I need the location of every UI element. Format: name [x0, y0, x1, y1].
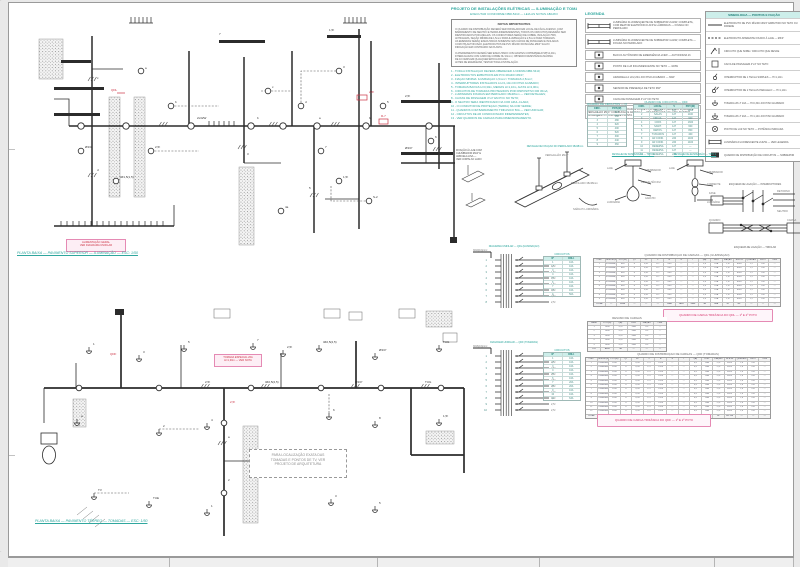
plan-label: c: [272, 85, 274, 89]
riser-side-table-2: CIRCUITOSNºDISJ.116A216A316A416A516A616A…: [543, 349, 581, 401]
outlet-low-icon: [706, 99, 724, 107]
title-strip-cell: [170, 558, 378, 567]
detail-2-drawing: VERGALHÃO Ø1/4" PERFILADO 38x38mm SAÍDA …: [509, 148, 601, 220]
plan-label: b: [175, 100, 177, 104]
riser-side-table-1: CIRCUITOSNºDISJ.110A210A310A410A510A610A…: [543, 253, 581, 297]
detail-1-text: FIXAÇÃO À LAJE COM CHUMBADOR Ø1/4" E ARR…: [456, 149, 508, 218]
margin-tick: [9, 149, 15, 150]
plan-label: Ø3/4": [405, 146, 413, 150]
plan-label: 6: [435, 135, 437, 139]
plan-label: 5: [387, 100, 389, 104]
plan-label: TV: [98, 488, 102, 492]
legend-right-row: INTERRUPTOR DE 1 TECLA SIMPLES — H=1,10m: [706, 70, 800, 83]
box-icon: [706, 60, 724, 68]
svg-text:1: 1: [486, 258, 488, 262]
legend-desc: BLOCO AUTÔNOMO DE EMERGÊNCIA 2x9W — AUTO…: [612, 53, 700, 58]
plan-label: 2,5²: [287, 345, 292, 349]
plan-label: 2x32W: [197, 116, 207, 120]
conduit-icon: [706, 21, 724, 29]
legend-row: ARANDELA A H=2,20m DO PISO ACABADO — 60W: [585, 72, 701, 82]
detail-3-drawing: LAJE CHUMBADOR VERGALHÃO Ø1/4" GANCHO LU…: [605, 156, 661, 222]
svg-text:GANCHO: GANCHO: [645, 197, 656, 200]
table-grid: FASEPOT(W)I(A)DISJFIAÇÃOOBS1148011,650A1…: [587, 321, 667, 353]
switch2-icon: [706, 86, 724, 94]
plan-label: 2: [163, 424, 165, 428]
table-grid: NºDISJ.116A216A316A416A516A616A720A820A9…: [543, 352, 581, 401]
notes-header-1: PROJETO DE INSTALAÇÕES ELÉTRICAS — ILUMI…: [451, 6, 577, 11]
svg-text:4: 4: [486, 276, 488, 280]
svg-text:2: 2: [486, 360, 488, 364]
rise-icon: [706, 47, 724, 55]
outlet-high-icon: [706, 112, 724, 120]
notes-column: PROJETO DE INSTALAÇÕES ELÉTRICAS — ILUMI…: [451, 6, 577, 121]
plan-label: Ø3/4": [85, 145, 93, 149]
svg-text:PERFILADO 38x38mm: PERFILADO 38x38mm: [571, 181, 598, 185]
floor-plan-upper: abcd3571,5²2,5²Ø3/4"3#1,5(1,5)S-24a62x32…: [13, 9, 457, 301]
notes-list: 1 - TODA A INSTALAÇÃO DEVERÁ OBEDECER À …: [451, 70, 577, 121]
legend-right-row: INTERRUPTOR DE 2 TECLAS PARALELO — H=1,1…: [706, 83, 800, 96]
plan-label: 3#2,5(2,5): [323, 340, 337, 344]
plan-label: d: [305, 100, 307, 104]
plan-label: 3#1,5(1,5): [120, 175, 134, 179]
floor-plan-ground: 13572,5²3#2,5(2,5)Ø3/4"TUGa24681,5²TVTUE…: [15, 303, 465, 547]
svg-text:8: 8: [486, 396, 488, 400]
plan-label: a: [145, 66, 147, 70]
load-summary-table: RESUMO DE CARGASFASEPOT(W)I(A)DISJFIAÇÃO…: [587, 317, 667, 352]
plan-label: 4: [211, 418, 213, 422]
legend-desc: SENSOR DE PRESENÇA DE TETO 360°: [612, 86, 700, 91]
legend-right-row: TOMADA 2P+T 10A — H=0,30m DO PISO ACABAD…: [706, 96, 800, 109]
table-title: QUADRO DE CIRCUITOS — QDL: [587, 103, 627, 106]
plan-label-red: 2,5²: [230, 400, 235, 404]
svg-text:VERGALHÃO Ø1/4": VERGALHÃO Ø1/4": [545, 152, 568, 157]
legend-mid-title: LEGENDA: [585, 11, 701, 16]
svg-text:LUMINÁRIA: LUMINÁRIA: [707, 201, 720, 204]
plan-label: 5: [188, 340, 190, 344]
plan-label: 8: [379, 416, 381, 420]
svg-text:3: 3: [486, 270, 488, 274]
notes-box-heading: NOTAS IMPORTANTES: [455, 22, 573, 26]
svg-text:2,5²: 2,5²: [551, 402, 556, 406]
svg-text:LAJE: LAJE: [669, 167, 675, 170]
legend-desc: ELETRODUTO DE PVC RÍGIDO Ø3/4" EMBUTIDO …: [724, 21, 800, 29]
title-strip-cell: [378, 558, 540, 567]
svg-text:3#10(10)mm²: 3#10(10)mm²: [473, 249, 488, 252]
plan-label: 1: [93, 342, 95, 346]
table-grid: NºDISJ.110A210A310A410A510A610A716A816AG…: [543, 256, 581, 297]
plan-label: 2,5²: [405, 94, 410, 98]
load-table-qdf-label: QUADRO DE CARGA TRIFÁSICA DO QDF — 1º E …: [597, 414, 711, 427]
svg-text:5: 5: [486, 378, 488, 382]
svg-text:6: 6: [486, 288, 488, 292]
svg-text:5: 5: [486, 282, 488, 286]
legend-right-row: CAIXA DE PASSAGEM 4"x4" NO TETO: [706, 57, 800, 70]
svg-text:6: 6: [486, 384, 488, 388]
legend-right-row: TOMADA 2P+T 20A — H=1,10m DO PISO ACABAD…: [706, 109, 800, 122]
svg-text:SAÍDA P/ LUMINÁRIA: SAÍDA P/ LUMINÁRIA: [573, 207, 599, 211]
schematic-2-label: ESQUEMA DE LIGAÇÃO — TRIFILAR: [707, 246, 800, 249]
table-grid: CIRC.LOCALVPOT.(W)1SALAS12712002SALAS127…: [633, 104, 699, 157]
load-table-qdl-label: QUADRO DE CARGA TRIFÁSICA DO QDL — 1º E …: [663, 309, 773, 322]
plan-label: 7: [257, 338, 259, 342]
legend-right-row: ELETRODUTO DE PVC RÍGIDO Ø3/4" EMBUTIDO …: [706, 18, 800, 31]
notes-header-2: EXECUTAR CONFORME NBR-5410 — LEIA AS NOT…: [451, 12, 577, 16]
legend-right-row: ELETRODUTO APARENTE FIXADO À LAJE — Ø3/4…: [706, 31, 800, 44]
plan-label: 1: [211, 504, 213, 508]
legend-desc: QUADRO DE DISTRIBUIÇÃO DE CIRCUITOS — SO…: [724, 153, 800, 158]
legend-desc: TOMADA 2P+T 10A — H=0,30m DO PISO ACABAD…: [724, 101, 800, 106]
plan-label: Ø3/4": [355, 380, 363, 384]
plan-label: TUE: [153, 496, 159, 500]
plan-label: 2,5²: [155, 145, 160, 149]
plan-label: 5: [379, 501, 381, 505]
plan-label: b: [257, 116, 259, 120]
svg-text:8: 8: [486, 300, 488, 304]
legend-desc: INTERRUPTOR DE 1 TECLA SIMPLES — H=1,10m: [724, 75, 800, 80]
svg-text:1: 1: [486, 354, 488, 358]
svg-text:3: 3: [486, 366, 488, 370]
legend-desc: PONTO DE LUZ NO TETO — POTÊNCIA INDICADA: [724, 127, 800, 132]
plan-bottom-callout: TOMADA ESPECIAL 20AH=1,30m — VER NOTA: [214, 354, 262, 367]
legend-desc: INTERRUPTOR DE 2 TECLAS PARALELO — H=1,1…: [724, 88, 800, 93]
legend-desc: CIRCUITO QUE SOBE / CIRCUITO QUE DESCE: [724, 49, 800, 54]
page: abcd3571,5²2,5²Ø3/4"3#1,5(1,5)S-24a62x32…: [0, 0, 800, 567]
table-grid: CIRC.POT.(W)1640256034804620540065207300…: [587, 106, 627, 147]
legend-right-row: CIRCUITO QUE SOBE / CIRCUITO QUE DESCE: [706, 44, 800, 57]
light-icon: [706, 125, 724, 133]
svg-text:CHUMBADOR: CHUMBADOR: [645, 169, 661, 172]
svg-text:10: 10: [484, 408, 487, 412]
plan-label: a: [228, 435, 230, 439]
detail-1-sketch: [456, 161, 506, 213]
plan-label: 3: [247, 152, 249, 156]
plan-bottom-title: PLANTA BAIXA — PAVIMENTO TÉRREO — TOMADA…: [35, 519, 148, 523]
plan-label: 3: [335, 494, 337, 498]
svg-text:2: 2: [486, 264, 488, 268]
plan-label: 3: [143, 350, 145, 354]
svg-text:9: 9: [486, 402, 488, 406]
plan-label: 6: [333, 408, 335, 412]
plan-label: 1,5²: [329, 28, 334, 32]
legend-right-row: LUMINÁRIA FLUORESCENTE 2x32W — VER LEGEN…: [706, 135, 800, 148]
svg-text:LUMINÁRIA: LUMINÁRIA: [607, 201, 620, 204]
title-strip: [8, 557, 794, 567]
svg-text:NEUTRO: NEUTRO: [777, 209, 788, 213]
plan-label: 7: [325, 145, 327, 149]
legend-desc: ELETRODUTO APARENTE FIXADO À LAJE — Ø3/4…: [724, 36, 800, 41]
qdl-panel-symbol: [450, 237, 457, 243]
detail-3-suspension: DETALHE DE SUSPENSÃO — TIPO 1 LAJE CHUMB…: [605, 153, 661, 227]
svg-text:LAJE: LAJE: [607, 167, 613, 170]
conduit-dash-icon: [706, 34, 724, 42]
svg-text:VERGALHÃO Ø1/4": VERGALHÃO Ø1/4": [641, 181, 661, 184]
fold-mark: [0, 551, 16, 567]
plan-label: S-2: [373, 195, 378, 199]
title-strip-cell: [540, 558, 715, 567]
plan-label: a: [319, 116, 321, 120]
note-line: ANTES DE ENERGIZAR, TESTAR TODA A INSTAL…: [455, 61, 573, 64]
plan-label: TUG: [443, 340, 450, 344]
legend-row: SENSOR DE PRESENÇA DE TETO 360°: [585, 83, 701, 93]
plan-label: d: [97, 168, 99, 172]
plan-label: 7: [219, 32, 221, 36]
note-line: INDICAÇÃO EM CONTRÁRIO NA PLANTA.: [455, 46, 573, 49]
legend-right: SIMBOLOGIA — PONTOS E FIAÇÃO ELETRODUTO …: [705, 11, 800, 162]
plan-label: 2,5²: [205, 380, 210, 384]
svg-text:RETORNO: RETORNO: [777, 189, 790, 193]
svg-text:7: 7: [486, 294, 488, 298]
qdf-panel-symbol: [115, 309, 124, 315]
plan-label: 3#2,5(2,5): [265, 380, 279, 384]
plan-top-title: PLANTA BAIXA — PAVIMENTO SUPERIOR — ILUM…: [17, 251, 138, 255]
drawing-sheet: abcd3571,5²2,5²Ø3/4"3#1,5(1,5)S-24a62x32…: [8, 2, 794, 557]
detail-2-perfilado: DETALHE DE FIXAÇÃO DO PERFILADO 38x38mm …: [509, 145, 601, 225]
detail-4-suspension: DETALHE DE SUSPENSÃO — TIPO 2 LAJE CHUMB…: [667, 153, 723, 227]
legend-right-row: PONTO DE LUZ NO TETO — POTÊNCIA INDICADA: [706, 122, 800, 135]
plan-label-red: QDF: [110, 352, 117, 356]
plan-bottom-labels: 13572,5²3#2,5(2,5)Ø3/4"TUGa24681,5²TVTUE…: [81, 338, 450, 508]
plan-label: 2: [228, 478, 230, 482]
notes-box: NOTAS IMPORTANTES O QUADRO DE DISTRIBUIÇ…: [451, 19, 577, 67]
margin-tick: [9, 455, 15, 456]
table-grid: CIRCDESCRIÇÃOPOT(W)QTFPVRSTI(A)DISJFIAÇÃ…: [585, 357, 771, 420]
notes-list-item: 13 - VER QUADROS DE CARGAS PARA DIMENSIO…: [451, 117, 577, 121]
plan-label-red: QDL: [111, 88, 118, 92]
legend-desc: CAIXA DE PASSAGEM 4"x4" NO TETO: [724, 62, 800, 67]
plan-label: 1,5²: [443, 414, 448, 418]
legend-desc: LUMINÁRIA FLUORESCENTE DE SOBREPOR 2x32W…: [612, 20, 700, 31]
svg-text:7: 7: [486, 390, 488, 394]
svg-text:2,5²: 2,5²: [551, 408, 556, 412]
plan-label: 1,5²: [343, 175, 348, 179]
table-grid: CIRCDESCRIÇÃOPOT(W)QTFPVRSTI(A)DISJFIAÇÃ…: [593, 258, 781, 307]
svg-text:CHUMBADOR: CHUMBADOR: [707, 171, 723, 174]
plan-label: c: [97, 76, 99, 80]
circuit-table-qdf: QUADRO DE CIRCUITOS — QDFCIRC.LOCALVPOT.…: [633, 101, 699, 157]
architecture-note: PARA LOCALIZAÇÃO EXATA DAS TOMADAS E PON…: [249, 449, 347, 478]
legend-desc: LUMINÁRIA FLUORESCENTE 2x32W — VER LEGEN…: [724, 140, 800, 145]
legend-fixture-row: LUMINÁRIA FLUORESCENTE DE SOBREPOR 2x32W…: [585, 18, 701, 33]
plan-label: 5: [309, 186, 311, 190]
legend-desc: LUMINÁRIA FLUORESCENTE DE SOBREPOR 1x32W…: [612, 38, 700, 46]
legend-fixture-row: LUMINÁRIA FLUORESCENTE DE SOBREPOR 1x32W…: [585, 34, 701, 49]
legend-desc: ARANDELA A H=2,20m DO PISO ACABADO — 60W: [612, 75, 700, 80]
plan-label: 3: [343, 65, 345, 69]
legend-desc: TOMADA 2P+T 20A — H=1,10m DO PISO ACABAD…: [724, 114, 800, 119]
load-table-qdf: QUADRO DE DISTRIBUIÇÃO DE CARGAS — QDF (…: [585, 353, 771, 419]
fold-mark: [0, 0, 16, 16]
legend-row: BLOCO AUTÔNOMO DE EMERGÊNCIA 2x9W — AUTO…: [585, 50, 701, 60]
detail-4-drawing: LAJE CHUMBADOR CORRENTE LUMINÁRIA: [667, 156, 723, 222]
svg-text:3#16(16)mm²: 3#16(16)mm²: [473, 345, 488, 348]
svg-text:4: 4: [486, 372, 488, 376]
plan-label-red: R-7: [381, 114, 386, 118]
plan-label-red: 2,5²: [369, 90, 374, 94]
legend-row: PONTO DE LUZ INCANDESCENTE NO TETO — 100…: [585, 61, 701, 71]
title-strip-cell: [8, 558, 170, 567]
svg-text:CORRENTE: CORRENTE: [707, 183, 721, 186]
load-table-qdl: QUADRO DE DISTRIBUIÇÃO DE CARGAS — QDL (…: [593, 254, 781, 307]
legend-desc: PONTO DE LUZ INCANDESCENTE NO TETO — 100…: [612, 64, 700, 69]
svg-text:2,5²: 2,5²: [551, 300, 556, 304]
plan-label: 4a: [285, 205, 289, 209]
title-strip-cell: [715, 558, 794, 567]
plan-label: TUG: [425, 380, 432, 384]
switch1-icon: [706, 73, 724, 81]
plan-label: Ø3/4": [379, 348, 387, 352]
svg-text:CARGA: CARGA: [787, 218, 796, 222]
circuit-table-qdl: QUADRO DE CIRCUITOS — QDLCIRC.POT.(W)164…: [587, 103, 627, 147]
lum-icon: [706, 138, 724, 146]
